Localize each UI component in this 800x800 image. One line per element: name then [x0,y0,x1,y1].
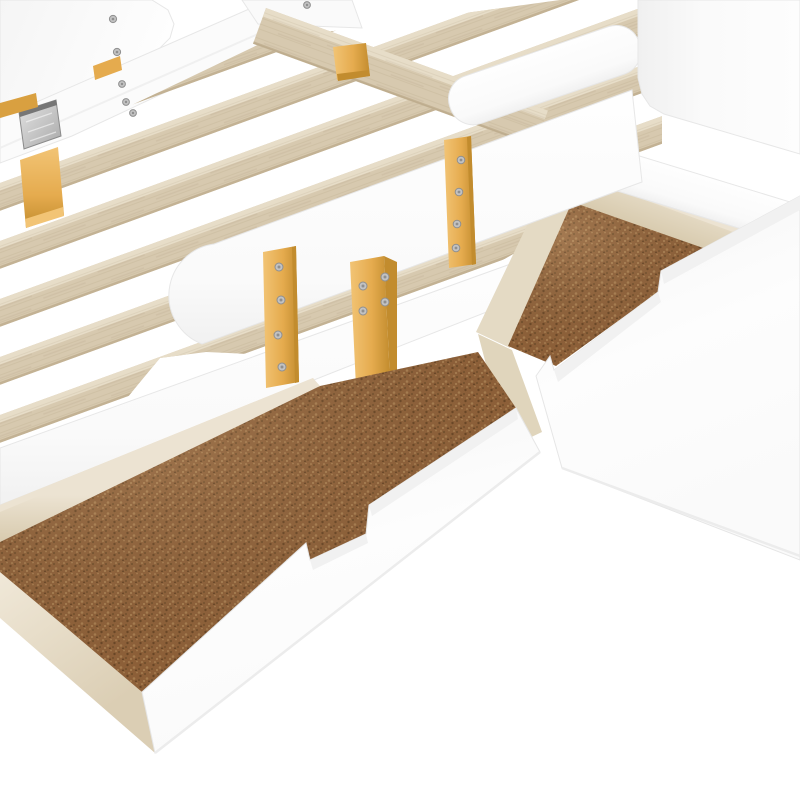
screw-icon [277,296,285,304]
screw-icon [275,263,283,271]
bracket-b [350,256,397,387]
screw-icon [457,156,465,164]
screw-icon [113,48,120,55]
screw-icon [304,2,311,9]
screw-icon [359,307,367,315]
screw-icon [455,188,463,196]
screw-icon [452,244,460,252]
screw-icon [381,273,389,281]
bed-render [0,0,800,800]
screw-icon [359,282,367,290]
footboard-group [638,0,800,154]
product-photo-bed-with-drawers [0,0,800,800]
footboard-panel [638,0,800,154]
screw-icon [278,363,286,371]
screw-icon [130,110,137,117]
screw-icon [109,15,116,22]
screw-icon [381,298,389,306]
screw-icon [274,331,282,339]
screw-icon [123,99,130,106]
screw-icon [453,220,461,228]
far-gold-block [333,43,370,81]
screw-icon [119,81,126,88]
